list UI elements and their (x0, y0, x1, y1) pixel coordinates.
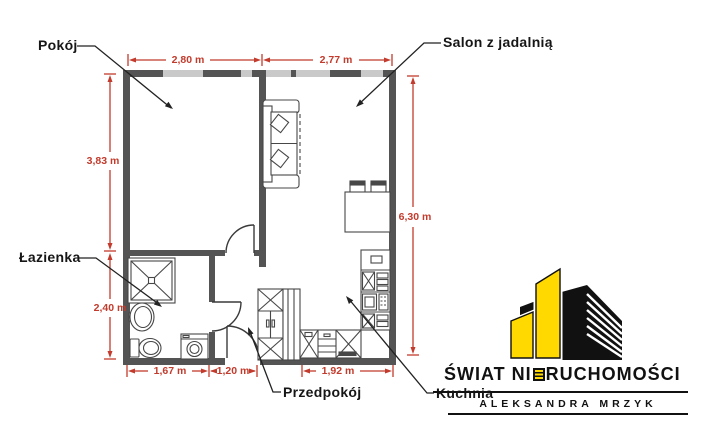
logo-building-yellow-small (511, 312, 533, 358)
dim-label-right: 6,30 m (399, 211, 432, 223)
dining-table (345, 181, 390, 232)
brand-part1: ŚWIAT NI (444, 364, 532, 385)
logo-buildings (511, 269, 622, 360)
toilet (130, 339, 161, 358)
dim-label-top-right: 2,77 m (320, 54, 353, 66)
dim-label-left-upper: 3,83 m (87, 155, 120, 167)
brand-part2: RUCHOMOŚCI (546, 364, 681, 385)
room-label-pokoj: Pokój (38, 37, 78, 53)
shower (128, 258, 175, 303)
wall-bathroom-right-lower (209, 332, 215, 358)
room-label-salon: Salon z jadalnią (443, 34, 553, 50)
hall-cabinet (283, 289, 300, 360)
room-label-lazienka: Łazienka (19, 249, 81, 265)
dim-label-bottom-left: 1,67 m (154, 365, 187, 377)
brand-name: ŚWIAT NIRUCHOMOŚCI (444, 364, 681, 385)
washing-machine (181, 334, 208, 359)
room-label-przedpokoj: Przedpokój (283, 384, 361, 400)
logo-rule-bottom (448, 413, 688, 415)
wall-bottom-left (123, 358, 225, 365)
dim-left (104, 74, 116, 359)
kitchen-counter (300, 330, 361, 358)
dim-label-bottom-middle: 1,20 m (217, 365, 250, 377)
dim-label-left-lower: 2,40 m (94, 302, 127, 314)
floor-plan-page: Pokój Salon z jadalnią Łazienka Przedpok… (0, 0, 710, 438)
stylized-e-glyph (533, 368, 545, 381)
dim-label-top-left: 2,80 m (172, 54, 205, 66)
dim-top (128, 54, 392, 66)
door-room (226, 225, 254, 253)
dim-label-bottom-right: 1,92 m (322, 365, 355, 377)
agent-name: ALEKSANDRA MRZYK (448, 398, 688, 410)
logo-building-yellow-tall (536, 269, 560, 358)
logo-rule-top (433, 391, 688, 393)
wall-bathroom-right-upper (209, 250, 215, 302)
sofa (263, 100, 300, 188)
bathroom-sink (129, 303, 154, 331)
wardrobe (258, 289, 283, 360)
